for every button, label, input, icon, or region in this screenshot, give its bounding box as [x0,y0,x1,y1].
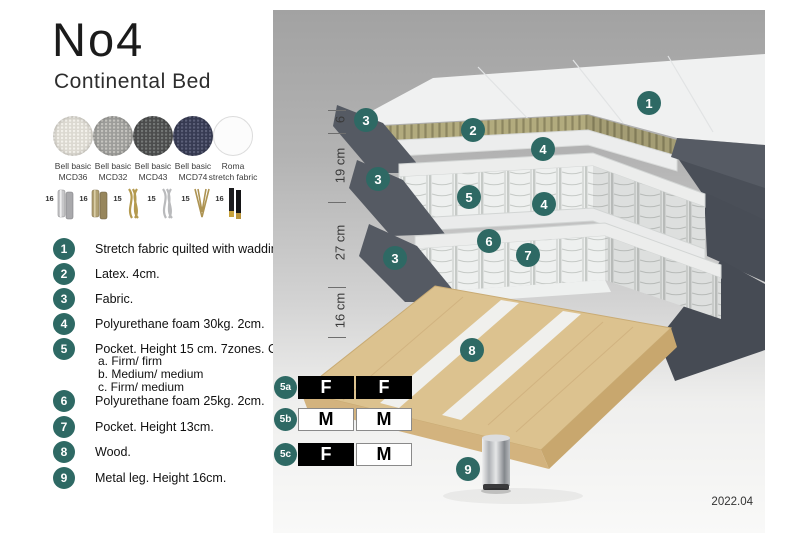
pocket-firmness-options: a. Firm/ firm b. Medium/ medium c. Firm/… [98,355,203,394]
fabric-swatch: Romastretch fabric [213,116,253,156]
swatch-code: stretch fabric [209,172,258,182]
legend-item-9: 9 Metal leg. Height 16cm. [53,467,226,489]
leg-option: 16 [214,186,248,222]
leg-hairpin-gold-icon [191,186,213,222]
callout-9: 9 [456,457,480,481]
callout-4: 4 [531,137,555,161]
firmness-cell: M [356,443,412,466]
leg-height: 16 [78,194,89,203]
firmness-cell: M [356,408,412,431]
swatch-circle-3 [173,116,213,156]
callout-3: 3 [383,246,407,270]
callout-1: 1 [637,91,661,115]
legend-number: 8 [53,441,75,463]
legend-item-7: 7 Pocket. Height 13cm. [53,416,214,438]
legend-text: Wood. [95,445,131,459]
leg-height: 15 [112,194,123,203]
page-subtitle: Continental Bed [54,70,211,94]
fabric-swatch: Bell basicMCD43 [133,116,173,156]
leg-height: 15 [180,194,191,203]
legend-number: 5 [53,338,75,360]
leg-black-gold-icon [225,186,247,222]
legend-item-3: 3 Fabric. [53,288,133,310]
legend-number: 6 [53,390,75,412]
fabric-swatch: Bell basicMCD32 [93,116,133,156]
legend-text: Metal leg. Height 16cm. [95,471,226,485]
legend-number: 7 [53,416,75,438]
floor-shadow [443,488,583,504]
legend-item-6: 6 Polyurethane foam 25kg. 2cm. [53,390,265,412]
firmness-cell: F [298,443,354,466]
leg-options-row: 16 16 15 15 [44,186,248,222]
callout-3: 3 [366,167,390,191]
firmness-label: 5b [274,408,297,431]
legend-text: Polyurethane foam 25kg. 2cm. [95,394,265,408]
leg-option: 15 [112,186,146,222]
legend-text: Latex. 4cm. [95,267,160,281]
leg-cylinder-brass-icon [89,186,111,222]
leg-option: 15 [146,186,180,222]
leg-twisted-silver-icon [157,186,179,222]
leg-top-cap [482,435,510,442]
firmness-cell: M [298,408,354,431]
metal-leg [482,438,510,486]
version-stamp: 2022.04 [683,496,753,508]
callout-7: 7 [516,243,540,267]
callout-5: 5 [457,185,481,209]
swatch-circle-2 [133,116,173,156]
callout-4: 4 [532,192,556,216]
swatch-circle-0 [53,116,93,156]
legend-text: Fabric. [95,292,133,306]
legend-number: 4 [53,313,75,335]
callout-2: 2 [461,118,485,142]
leg-option: 16 [78,186,112,222]
dimension-label-27cm: 27 cm [333,216,348,270]
firmness-cell: F [298,376,354,399]
dimension-tick [328,202,346,203]
legend-number: 3 [53,288,75,310]
legend-number: 2 [53,263,75,285]
firmness-cell: F [356,376,412,399]
fabric-swatch-row: Bell basicMCD36 Bell basicMCD32 Bell bas… [53,116,253,156]
dimension-label-19cm: 19 cm [333,139,348,193]
legend-text: Stretch fabric quilted with wadding. [95,242,288,256]
leg-cylinder-chrome-icon [55,186,77,222]
callout-6: 6 [477,229,501,253]
leg-twisted-gold-icon [123,186,145,222]
leg-option: 16 [44,186,78,222]
firmness-label: 5a [274,376,297,399]
legend-text: Pocket. Height 13cm. [95,420,214,434]
legend-item-1: 1 Stretch fabric quilted with wadding. [53,238,288,260]
swatch-circle-4 [213,116,253,156]
legend-text: Polyurethane foam 30kg. 2cm. [95,317,265,331]
leg-height: 15 [146,194,157,203]
legend-number: 9 [53,467,75,489]
leg-option: 15 [180,186,214,222]
leg-shadow [481,488,511,494]
legend-number: 1 [53,238,75,260]
leg-height: 16 [44,194,55,203]
dimension-label-16cm: 16 cm [333,284,348,338]
bed-cutaway-render: 6 19 cm 27 cm 16 cm 1 2 3 3 3 4 4 5 6 7 … [273,10,765,533]
callout-8: 8 [460,338,484,362]
legend-item-4: 4 Polyurethane foam 30kg. 2cm. [53,313,265,335]
legend-item-2: 2 Latex. 4cm. [53,263,160,285]
swatch-name: Roma [222,161,245,171]
legend-item-8: 8 Wood. [53,441,131,463]
fabric-swatch: Bell basicMCD36 [53,116,93,156]
fabric-swatch: Bell basicMCD74 [173,116,213,156]
firmness-label: 5c [274,443,297,466]
page-title: No4 [52,12,144,67]
leg-height: 16 [214,194,225,203]
product-sheet: No4 Continental Bed Bell basicMCD36 Bell… [0,0,800,533]
swatch-circle-1 [93,116,133,156]
callout-3: 3 [354,108,378,132]
